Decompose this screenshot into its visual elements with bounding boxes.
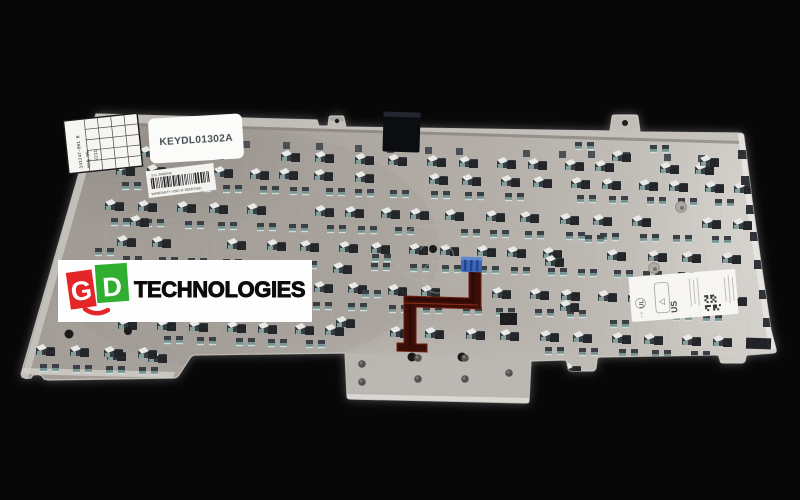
svg-text:G: G: [69, 275, 94, 308]
svg-text:c us: c us: [639, 311, 643, 317]
svg-text:2211: 2211: [93, 149, 100, 161]
svg-text:TECHNOLOGIES: TECHNOLOGIES: [134, 277, 305, 302]
svg-text:US: US: [668, 300, 679, 313]
svg-text:D: D: [102, 271, 124, 302]
